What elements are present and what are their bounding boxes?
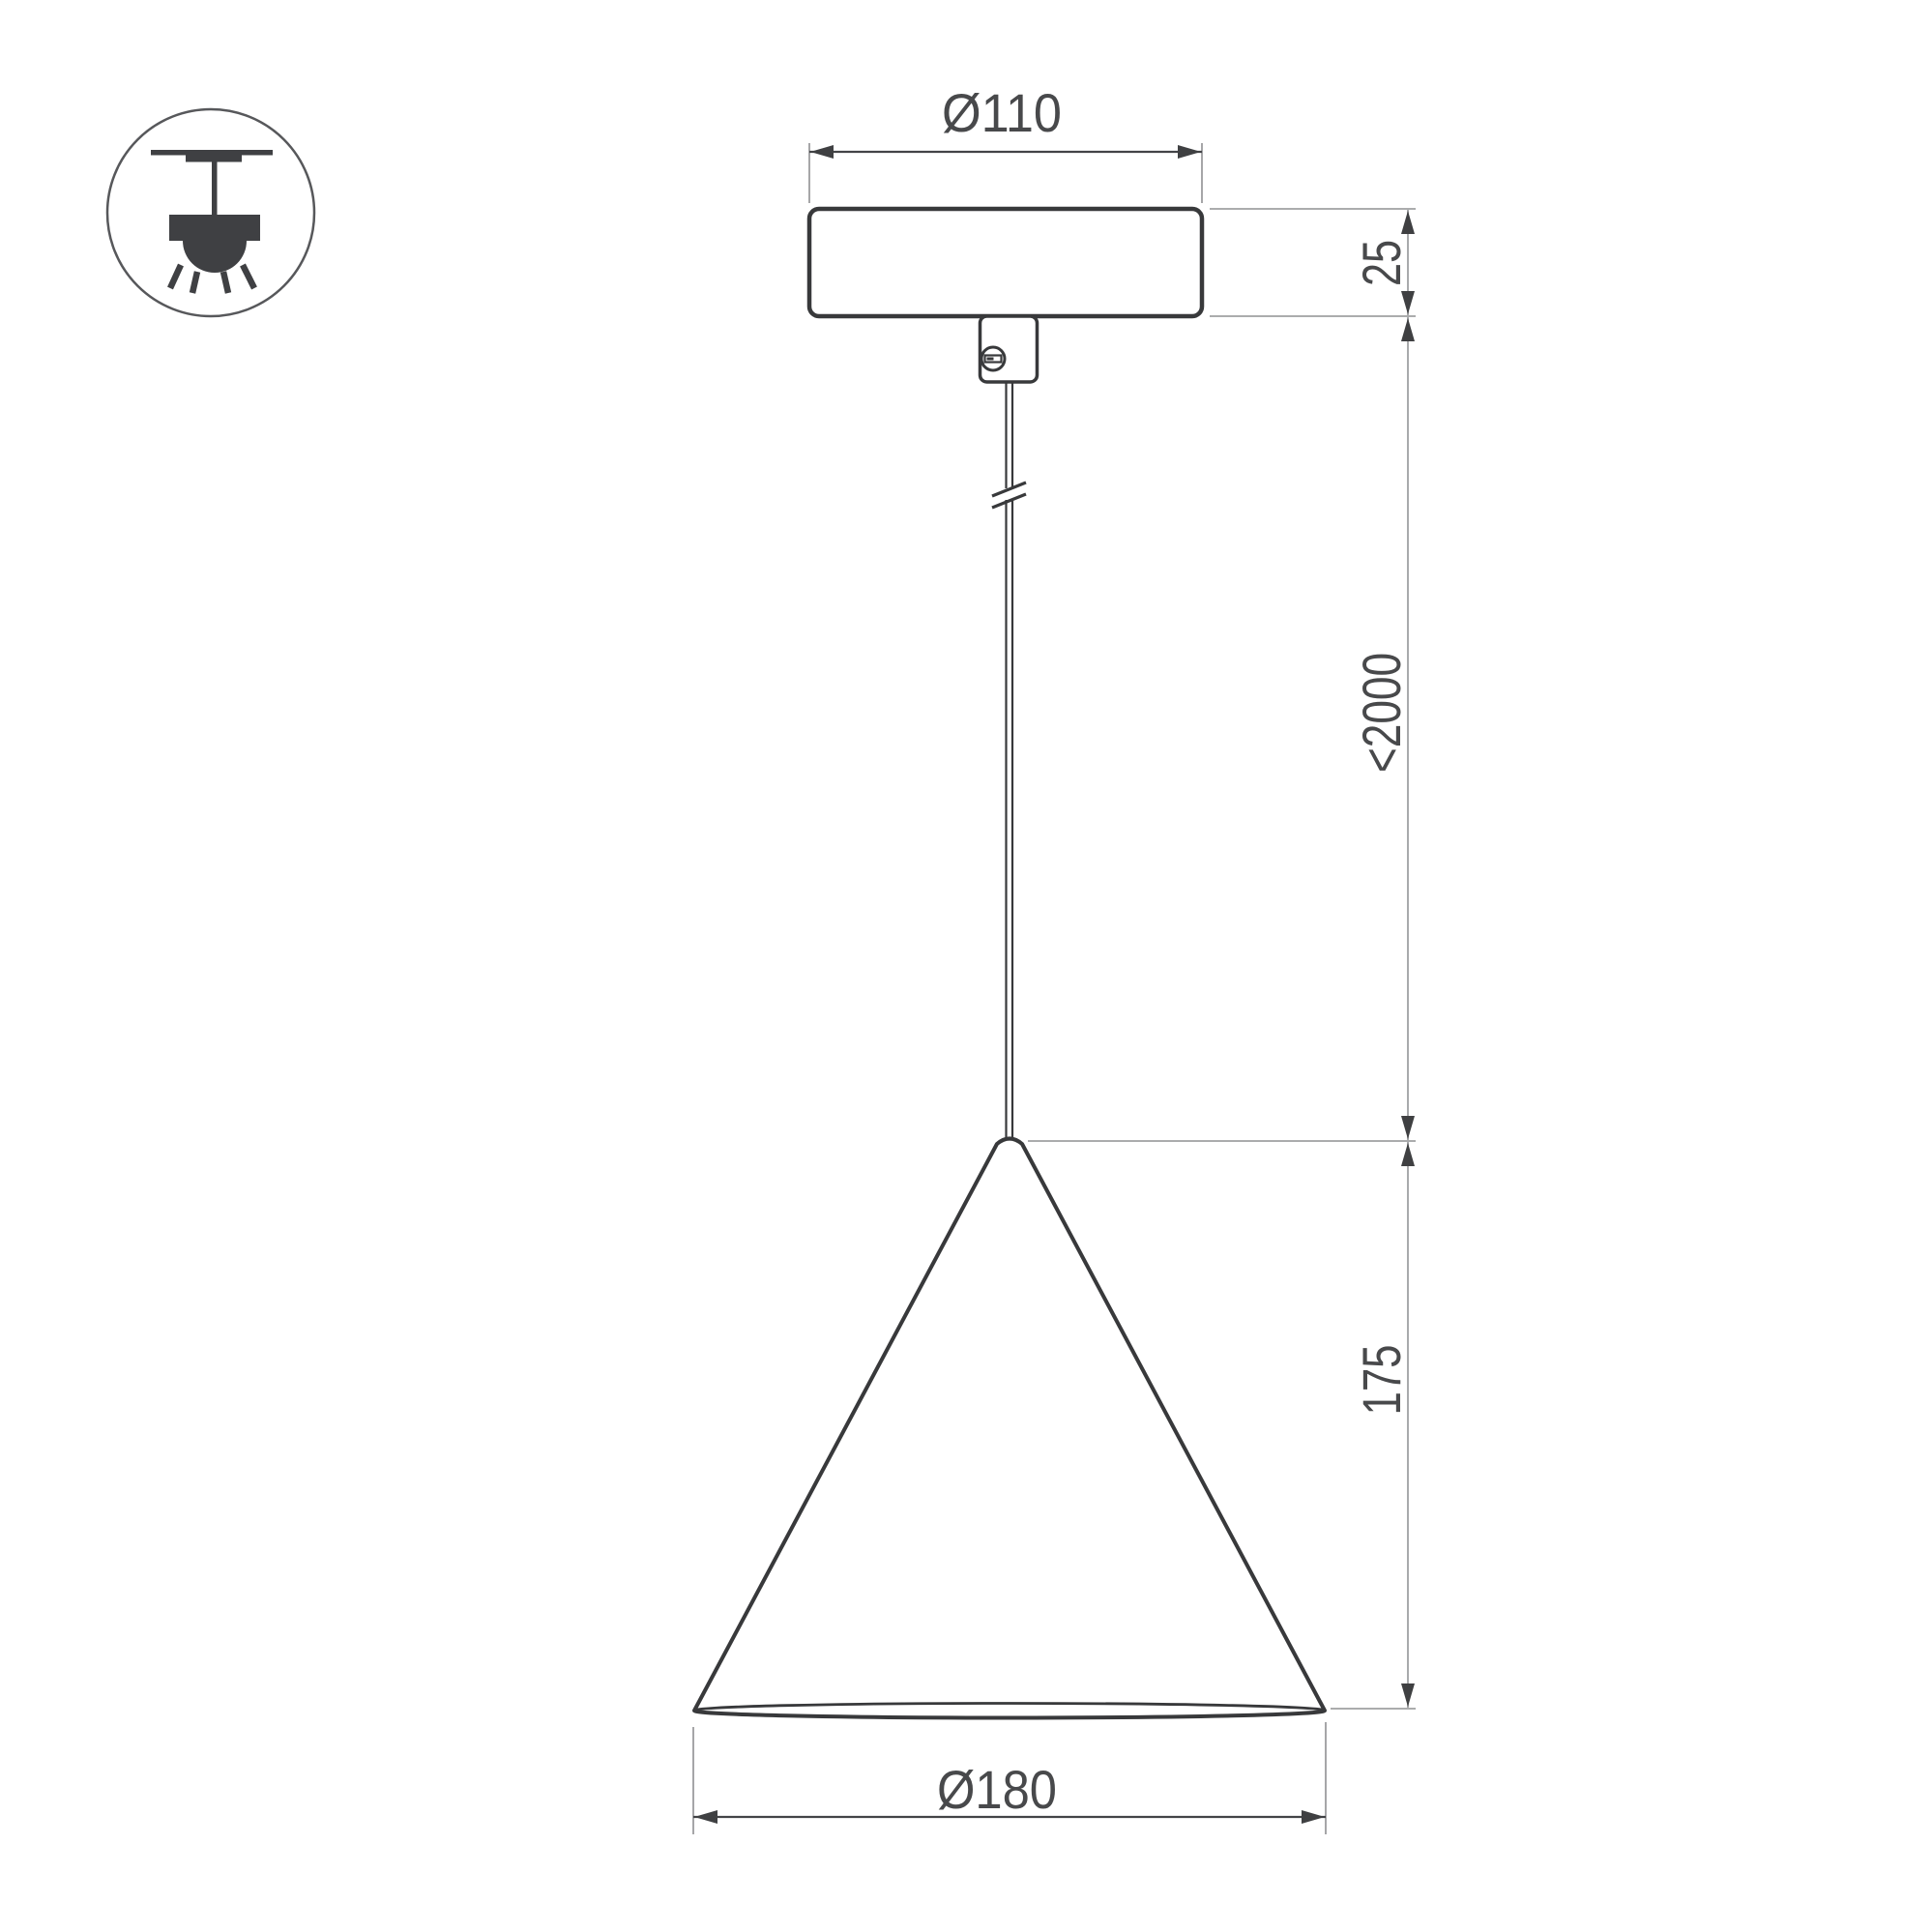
- pendant-lamp-drawing: Ø110 25 <2000 175 Ø180: [0, 0, 1932, 1932]
- ceiling-pendant-light-icon: [107, 109, 314, 316]
- arrow-down-icon: [1401, 1683, 1415, 1707]
- technical-drawing-canvas: Ø110 25 <2000 175 Ø180: [0, 0, 1932, 1932]
- icon-lamp-body: [169, 215, 260, 241]
- arrow-up-icon: [1401, 318, 1415, 341]
- arrow-left-icon: [810, 145, 834, 159]
- arrow-right-icon: [1302, 1810, 1325, 1824]
- lamp-outline: [694, 209, 1325, 1718]
- canopy: [809, 209, 1202, 316]
- arrow-up-icon: [1401, 1143, 1415, 1166]
- suspension-cable: [1007, 382, 1013, 1138]
- cable-break-symbol: [992, 483, 1026, 508]
- dimension-canopy-diameter: Ø110: [809, 82, 1202, 203]
- icon-ceiling-line: [151, 150, 273, 156]
- label-canopy-height: 25: [1351, 240, 1412, 286]
- icon-mount-plate: [186, 156, 242, 162]
- arrow-up-icon: [1401, 211, 1415, 234]
- dimension-shade-diameter: Ø180: [693, 1722, 1326, 1834]
- label-suspension-length: <2000: [1351, 653, 1412, 773]
- label-canopy-diameter: Ø110: [942, 82, 1062, 143]
- arrow-down-icon: [1401, 1116, 1415, 1139]
- icon-circle-border: [107, 109, 314, 316]
- cord-grip-screw-slot-fill: [987, 358, 994, 361]
- arrow-left-icon: [694, 1810, 717, 1824]
- arrow-right-icon: [1178, 145, 1201, 159]
- cone-shade: [694, 1139, 1325, 1718]
- label-shade-diameter: Ø180: [937, 1759, 1057, 1820]
- arrow-down-icon: [1401, 291, 1415, 314]
- label-shade-height: 175: [1351, 1345, 1412, 1416]
- icon-lamp-dome: [183, 241, 247, 273]
- icon-stem: [212, 161, 218, 216]
